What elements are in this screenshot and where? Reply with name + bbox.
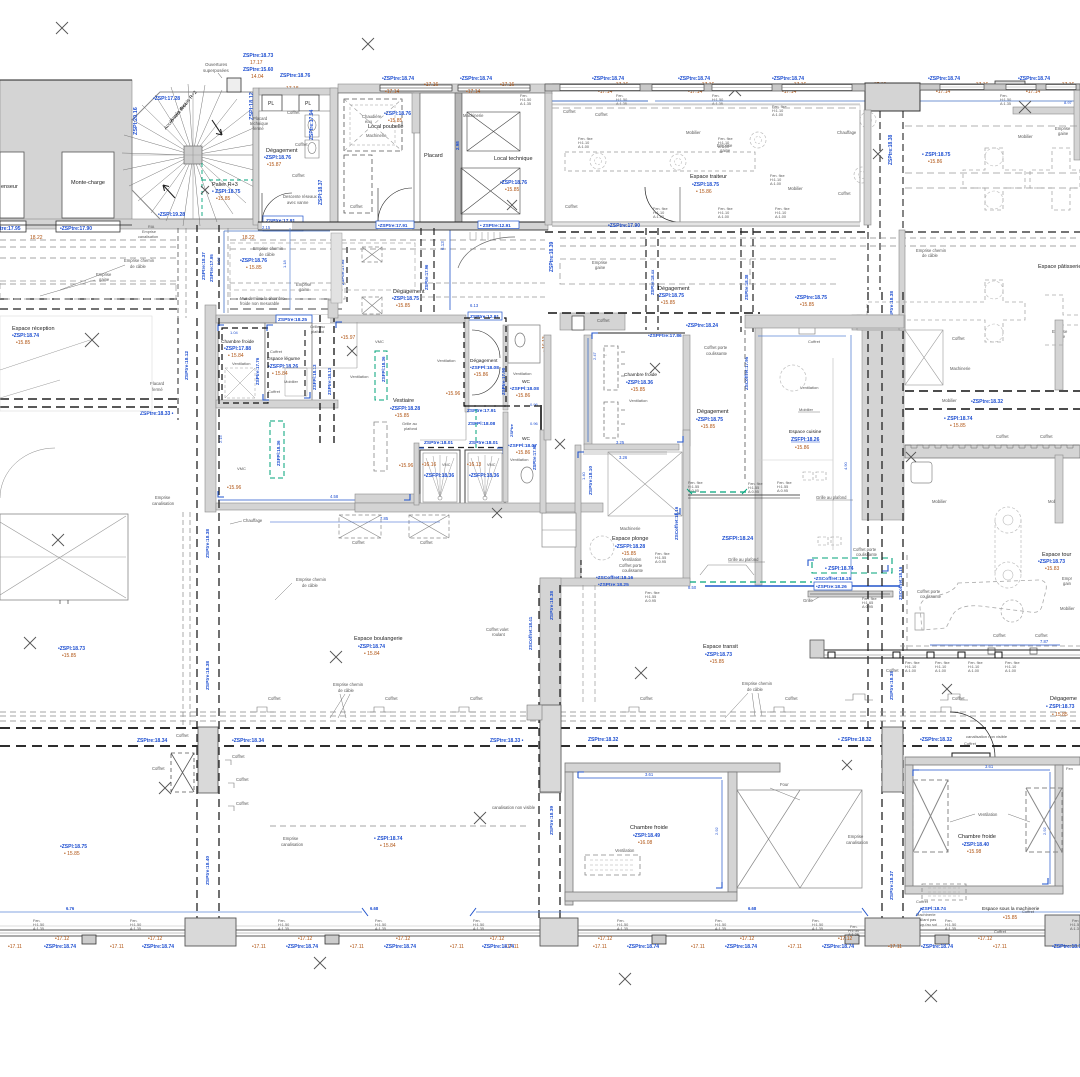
svg-text:•ZSPFtre:17.86: •ZSPFtre:17.86	[648, 333, 682, 339]
svg-text:ZSPtre:17.96: ZSPtre:17.96	[424, 264, 429, 290]
svg-text:•17.16: •17.16	[500, 82, 514, 88]
svg-text:•15.96: •15.96	[399, 463, 413, 469]
svg-text:de câble: de câble	[338, 688, 355, 693]
svg-text:Dégagement: Dégagement	[266, 148, 298, 154]
svg-text:VMC: VMC	[487, 463, 496, 467]
svg-text:ZSPtre:18.32: ZSPtre:18.32	[588, 737, 619, 743]
svg-text:Fen: Fen	[1066, 766, 1073, 771]
svg-text:Emprise: Emprise	[142, 230, 156, 234]
svg-text:A:1.00: A:1.00	[968, 669, 979, 673]
svg-text:Ventilation: Ventilation	[615, 848, 635, 853]
svg-text:4.90: 4.90	[843, 461, 848, 470]
svg-text:ZSFPl:18.08: ZSFPl:18.08	[468, 421, 496, 427]
svg-text:•15.86: •15.86	[516, 450, 530, 456]
svg-text:tre:17.95: tre:17.95	[0, 226, 21, 232]
svg-text:• ZSPl:18.74: • ZSPl:18.74	[825, 566, 854, 572]
svg-text:1.40: 1.40	[581, 471, 586, 480]
svg-text:•15.85: •15.85	[661, 300, 675, 306]
svg-text:ZSPtre:17.95: ZSPtre:17.95	[209, 254, 214, 282]
svg-text:ZSPtre:18.73: ZSPtre:18.73	[243, 53, 274, 59]
svg-text:A:1.35: A:1.35	[33, 927, 44, 931]
svg-text:Coffret: Coffret	[838, 191, 851, 196]
svg-text:•17.11: •17.11	[888, 944, 902, 950]
svg-text:• 15.84: • 15.84	[380, 843, 396, 849]
svg-text:Coffret: Coffret	[563, 109, 576, 114]
svg-text:A:0.95: A:0.95	[688, 489, 699, 493]
svg-text:•15.85: •15.85	[216, 196, 230, 202]
svg-text:ZSPtre:18.33 •: ZSPtre:18.33 •	[490, 738, 524, 744]
svg-text:Coffret: Coffret	[1035, 633, 1048, 638]
svg-text:Coffret: Coffret	[785, 696, 798, 701]
svg-text:canalisation: canalisation	[152, 501, 175, 506]
svg-text:Coffret: Coffret	[287, 110, 300, 115]
svg-text:Emprise chemin: Emprise chemin	[124, 258, 155, 263]
svg-text:• ZSPl:18.75: • ZSPl:18.75	[212, 189, 241, 195]
svg-text:Coffret: Coffret	[595, 112, 608, 117]
svg-text:canalisation non visible: canalisation non visible	[966, 734, 1008, 739]
svg-text:A:0.95: A:0.95	[777, 489, 788, 493]
svg-text:•17.11: •17.11	[110, 944, 124, 950]
svg-text:•17.11: •17.11	[450, 944, 464, 950]
svg-text:A:1.00: A:1.00	[1005, 669, 1016, 673]
svg-text:Ventilation: Ventilation	[513, 371, 531, 376]
svg-text:•15.85: •15.85	[710, 659, 724, 665]
svg-text:•ZSPtre:18.32: •ZSPtre:18.32	[971, 399, 1003, 405]
svg-text:•17.11: •17.11	[993, 944, 1007, 950]
svg-text:•ZSPtre:18.74: •ZSPtre:18.74	[822, 944, 854, 950]
svg-text:A:1.35: A:1.35	[617, 927, 628, 931]
svg-text:•ZSPtre:18.32: •ZSPtre:18.32	[920, 737, 952, 743]
svg-text:Chambre froide: Chambre froide	[624, 372, 657, 378]
svg-text:•15.85: •15.85	[1003, 915, 1017, 921]
svg-text:•ZSPl:17.28: •ZSPl:17.28	[153, 96, 180, 102]
svg-text:•ZSCoffret:18.16: •ZSCoffret:18.16	[596, 575, 633, 581]
svg-text:3.26: 3.26	[619, 455, 628, 460]
svg-text:ZSFPl:18.36: ZSFPl:18.36	[381, 356, 386, 382]
svg-text:PL: PL	[268, 101, 274, 107]
svg-text:A:1.35: A:1.35	[375, 927, 386, 931]
svg-text:fermé: fermé	[152, 387, 163, 392]
svg-text:Grille au plafond: Grille au plafond	[816, 495, 847, 500]
svg-text:• ZSPl:18.73: • ZSPl:18.73	[1046, 704, 1075, 710]
svg-text:Monte-charge: Monte-charge	[71, 180, 105, 186]
svg-text:7.85: 7.85	[380, 516, 389, 521]
svg-text:ZSPtre:18.38: ZSPtre:18.38	[205, 529, 211, 558]
svg-text:coulissante: coulissante	[706, 351, 728, 356]
svg-text:ZSPtre:18.38: ZSPtre:18.38	[549, 591, 555, 620]
svg-text:Ventilation: Ventilation	[350, 374, 368, 379]
svg-text:6.13: 6.13	[470, 303, 479, 308]
svg-text:Four: Four	[780, 782, 789, 787]
svg-text:gain: gain	[1063, 581, 1072, 586]
svg-text:Machinerie: Machinerie	[620, 526, 641, 531]
svg-text:Mobilier: Mobilier	[1060, 606, 1075, 611]
svg-text:4.58: 4.58	[330, 494, 339, 499]
svg-text:ZSPtre:17.90: ZSPtre:17.90	[501, 367, 506, 395]
svg-text:Ventilation: Ventilation	[510, 457, 528, 462]
svg-text:WC: WC	[522, 379, 531, 385]
svg-text:ZSPtre:18.38: ZSPtre:18.38	[205, 661, 211, 690]
svg-text:Coffret: Coffret	[352, 540, 365, 545]
svg-text:Coffret: Coffret	[385, 696, 398, 701]
svg-text:Coffret: Coffret	[886, 668, 899, 673]
svg-text:ZSPtre:17.96: ZSPtre:17.96	[532, 444, 537, 470]
svg-text:coulissante: coulissante	[622, 568, 644, 573]
svg-text:Emprise chemin: Emprise chemin	[253, 246, 284, 251]
svg-text:•17.11: •17.11	[350, 944, 364, 950]
svg-text:Grille: Grille	[803, 598, 813, 603]
svg-text:Ouvertures: Ouvertures	[205, 62, 228, 67]
svg-text:Descente réseaux: Descente réseaux	[283, 194, 318, 199]
svg-text:• ZSPl:18.74: • ZSPl:18.74	[374, 836, 403, 842]
svg-text:•ZSPtre:18.74: •ZSPtre:18.74	[44, 944, 76, 950]
svg-text:6.68: 6.68	[370, 906, 379, 911]
svg-text:•15.97: •15.97	[341, 335, 355, 341]
svg-text:Emprise chemin: Emprise chemin	[296, 577, 327, 582]
svg-text:Espace tour: Espace tour	[1042, 552, 1072, 558]
svg-text:enseur: enseur	[1, 184, 18, 190]
svg-text:ZSPtre:18.12: ZSPtre:18.12	[184, 351, 190, 380]
svg-text:•15.98: •15.98	[967, 849, 981, 855]
svg-text:3.92: 3.92	[216, 256, 221, 265]
svg-text:•16.16: •16.16	[422, 462, 436, 468]
svg-text:A:1.35: A:1.35	[715, 927, 726, 931]
svg-text:• 15.85: • 15.85	[64, 851, 80, 857]
svg-text:Coffret: Coffret	[268, 389, 281, 394]
svg-text:de câble: de câble	[259, 252, 276, 257]
svg-text:• ZSPl:18.75: • ZSPl:18.75	[922, 152, 951, 158]
svg-text:•ZSPl:18.75: •ZSPl:18.75	[60, 844, 87, 850]
svg-text:•17.11: •17.11	[252, 944, 266, 950]
svg-text:Coffret: Coffret	[268, 696, 281, 701]
svg-text:Mobilier: Mobilier	[799, 407, 814, 412]
svg-text:RIA: RIA	[148, 225, 155, 229]
svg-text:A:1.35: A:1.35	[473, 927, 484, 931]
svg-text:•17.12: •17.12	[598, 936, 612, 942]
svg-text:•ZSPl:18.73: •ZSPl:18.73	[58, 646, 85, 652]
svg-text:•15.85: •15.85	[396, 303, 410, 309]
svg-text:Coffret: Coffret	[295, 142, 308, 147]
svg-text:plafond: plafond	[404, 426, 417, 431]
svg-text:Emprise chemin: Emprise chemin	[333, 682, 364, 687]
svg-text:•ZSPl:18.76: •ZSPl:18.76	[240, 258, 267, 264]
svg-text:A:1.35: A:1.35	[812, 927, 823, 931]
svg-text:ZSPtre:18.40: ZSPtre:18.40	[205, 856, 211, 885]
svg-text:VMC: VMC	[442, 463, 451, 467]
svg-text:•17.12: •17.12	[490, 936, 504, 942]
svg-text:•ZSPl:18.75: •ZSPl:18.75	[692, 182, 719, 188]
svg-text:Espace pâtisserie: Espace pâtisserie	[1038, 264, 1080, 270]
svg-text:0.96: 0.96	[530, 421, 539, 426]
svg-text:Coffret: Coffret	[952, 336, 965, 341]
svg-text:Coffret: Coffret	[350, 204, 363, 209]
svg-text:Coffret: Coffret	[420, 540, 433, 545]
svg-text:coulissante: coulissante	[920, 594, 942, 599]
svg-text:3.61: 3.61	[985, 764, 994, 769]
svg-text:•ZSPtre:18.24: •ZSPtre:18.24	[686, 323, 718, 329]
svg-text:•ZSPtre:18.74: •ZSPtre:18.74	[382, 76, 414, 82]
svg-text:Dégagement: Dégagement	[697, 409, 729, 415]
svg-text:Ventilation: Ventilation	[800, 385, 818, 390]
svg-text:•ZSPl:18.74: •ZSPl:18.74	[358, 644, 385, 650]
svg-text:•ZSPl:19.28: •ZSPl:19.28	[158, 212, 185, 218]
svg-text:7.87: 7.87	[1040, 639, 1049, 644]
svg-text:•ZSPl:18.76: •ZSPl:18.76	[264, 155, 291, 161]
svg-text:A:1.00: A:1.00	[772, 113, 783, 117]
svg-text:A:1.35: A:1.35	[520, 102, 531, 106]
svg-text:A:1.35: A:1.35	[130, 927, 141, 931]
svg-text:•ZSPl:18.49: •ZSPl:18.49	[633, 833, 660, 839]
svg-text:ZSPtre:18.01: ZSPtre:18.01	[469, 440, 498, 446]
svg-text:A:1.35: A:1.35	[278, 927, 289, 931]
svg-text:•ZSFPl:18.36: •ZSFPl:18.36	[424, 473, 454, 479]
svg-text:•15.85: •15.85	[16, 340, 30, 346]
svg-text:Coffret: Coffret	[176, 733, 189, 738]
svg-text:•ZSFPl:18.08: •ZSFPl:18.08	[510, 386, 539, 392]
svg-text:Coffret: Coffret	[1022, 909, 1035, 914]
svg-text:ZSPtre:18.39: ZSPtre:18.39	[549, 806, 555, 835]
svg-text:•ZSFPl:18.08: •ZSFPl:18.08	[470, 365, 499, 371]
svg-text:Coffret: Coffret	[236, 801, 249, 806]
svg-text:ZSPtre:17.76: ZSPtre:17.76	[255, 357, 260, 385]
svg-text:Ventilation: Ventilation	[622, 557, 642, 562]
svg-text:A:0.95: A:0.95	[645, 599, 656, 603]
svg-text:•15.86: •15.86	[516, 393, 530, 399]
svg-text:de câble: de câble	[130, 264, 147, 269]
svg-text:de câble: de câble	[302, 583, 319, 588]
svg-text:Coffret porte: Coffret porte	[704, 345, 728, 350]
svg-text:•17.16: •17.16	[424, 82, 438, 88]
svg-text:•ZSCoffret:18.15: •ZSCoffret:18.15	[814, 576, 851, 582]
svg-text:6.76: 6.76	[66, 906, 75, 911]
svg-text:ZSPtre:18.34: ZSPtre:18.34	[137, 738, 168, 744]
svg-text:3.25: 3.25	[616, 440, 625, 445]
svg-text:Coffret: Coffret	[270, 349, 283, 354]
svg-text:Mobilier: Mobilier	[284, 379, 299, 384]
svg-text:ZSPtre:12.91: ZSPtre:12.91	[470, 314, 499, 320]
svg-text:•15.87: •15.87	[267, 162, 281, 168]
svg-text:•15.96: •15.96	[446, 391, 460, 397]
svg-text:Coffret: Coffret	[808, 339, 821, 344]
svg-text:Placard: Placard	[424, 153, 443, 159]
svg-text:ZSPtre:18.33 •: ZSPtre:18.33 •	[140, 411, 174, 417]
svg-text:6.13: 6.13	[440, 241, 445, 250]
svg-text:•ZSPtre:18.74: •ZSPtre:18.74	[482, 944, 514, 950]
svg-text:•15.85: •15.85	[701, 424, 715, 430]
svg-text:•ZSFPl:18.36: •ZSFPl:18.36	[469, 473, 499, 479]
svg-text:A:1.00: A:1.00	[718, 215, 729, 219]
svg-text:canalisation non visible: canalisation non visible	[492, 805, 536, 810]
svg-text:plafond: plafond	[311, 329, 324, 334]
svg-text:Mobilier: Mobilier	[942, 398, 957, 403]
svg-text:roulant: roulant	[492, 632, 506, 637]
svg-text:Coffret: Coffret	[597, 318, 610, 323]
svg-text:ZSPtre:18.xx: ZSPtre:18.xx	[650, 269, 655, 295]
svg-text:gaine: gaine	[595, 265, 606, 270]
svg-text:VMC: VMC	[237, 466, 246, 471]
svg-text:8.97: 8.97	[1064, 100, 1073, 105]
svg-text:•17.12: •17.12	[396, 936, 410, 942]
svg-text:A:0.95: A:0.95	[748, 490, 759, 494]
svg-text:•ZSPtre:18.34: •ZSPtre:18.34	[232, 738, 264, 744]
svg-text:Coffret: Coffret	[1040, 434, 1053, 439]
svg-text:•ZSPl:18.73: •ZSPl:18.73	[1038, 559, 1065, 565]
svg-text:Coffret: Coffret	[994, 929, 1007, 934]
svg-text:•ZSPtre:18.74: •ZSPtre:18.74	[627, 944, 659, 950]
svg-text:• 15.86: • 15.86	[696, 189, 712, 195]
svg-text:Emprise: Emprise	[848, 834, 864, 839]
svg-text:•17.14: •17.14	[466, 89, 480, 95]
svg-text:ZSPtre:18.37: ZSPtre:18.37	[201, 252, 206, 280]
svg-text:A:1.00: A:1.00	[718, 145, 729, 149]
svg-text:Mobilier: Mobilier	[788, 186, 803, 191]
svg-text:•15.85: •15.85	[800, 302, 814, 308]
svg-text:VMC: VMC	[375, 339, 384, 344]
svg-text:• 15.85: • 15.85	[950, 423, 966, 429]
svg-text:• ZSPl:18.74: • ZSPl:18.74	[944, 416, 973, 422]
svg-text:•ZSPtre:17.91: •ZSPtre:17.91	[378, 223, 408, 228]
svg-text:superposées: superposées	[203, 68, 230, 73]
svg-text:ZSPl:18.37: ZSPl:18.37	[318, 179, 324, 205]
svg-text:Emprise: Emprise	[283, 836, 299, 841]
svg-text:Emprise: Emprise	[155, 495, 171, 500]
svg-text:•ZSPl:18.75: •ZSPl:18.75	[392, 296, 419, 302]
svg-text:14.04: 14.04	[251, 74, 264, 80]
svg-text:canalisation: canalisation	[138, 235, 158, 239]
svg-text:1.18: 1.18	[282, 259, 287, 268]
svg-text:Coffret: Coffret	[565, 204, 578, 209]
svg-text:A:1.35: A:1.35	[945, 927, 956, 931]
svg-text:ZSPtre:18.76: ZSPtre:18.76	[280, 73, 311, 79]
svg-text:Dégagement: Dégagement	[470, 358, 498, 364]
svg-text:•ZSFPl:18.28: •ZSFPl:18.28	[615, 544, 645, 550]
svg-text:ZSPtre:18.10: ZSPtre:18.10	[588, 466, 594, 495]
svg-text:•16.13: •16.13	[467, 462, 481, 468]
svg-text:Coffret: Coffret	[993, 633, 1006, 638]
svg-text:ZSPtre:17.91: ZSPtre:17.91	[467, 408, 496, 414]
svg-text:•ZSPl:17.88: •ZSPl:17.88	[224, 346, 251, 352]
svg-text:Chambre froide: Chambre froide	[958, 834, 996, 840]
svg-text:•ZSPtre:18.74: •ZSPtre:18.74	[1052, 944, 1080, 950]
svg-text:Ventilation: Ventilation	[978, 812, 998, 817]
svg-text:Coffret: Coffret	[470, 696, 483, 701]
svg-text:•17.11: •17.11	[788, 944, 802, 950]
svg-text:•15.85: •15.85	[505, 187, 519, 193]
svg-text:•15.86: •15.86	[795, 445, 809, 451]
svg-text:Local technique: Local technique	[494, 156, 533, 162]
svg-text:•ZSPtre:18.74: •ZSPtre:18.74	[928, 76, 960, 82]
svg-text:• 15.84: • 15.84	[228, 353, 244, 359]
svg-text:de câble: de câble	[747, 687, 764, 692]
svg-text:2.92: 2.92	[1042, 826, 1047, 835]
svg-text:A:1.00: A:1.00	[935, 669, 946, 673]
svg-text:Machinerie: Machinerie	[366, 133, 387, 138]
svg-text:1.04: 1.04	[230, 330, 239, 335]
svg-text:Coffret: Coffret	[640, 696, 653, 701]
svg-text:Espace réception: Espace réception	[12, 326, 55, 332]
svg-text:Espace boulangerie: Espace boulangerie	[354, 636, 403, 642]
svg-text:2.92: 2.92	[714, 826, 719, 835]
svg-text:6.68: 6.68	[748, 906, 757, 911]
svg-text:Espace transit: Espace transit	[703, 644, 738, 650]
svg-text:fermé: fermé	[253, 126, 264, 131]
svg-text:•ZSPtre:18.74: •ZSPtre:18.74	[142, 944, 174, 950]
svg-text:•ZSPtre:18.75: •ZSPtre:18.75	[795, 295, 827, 301]
svg-text:A:1.35: A:1.35	[848, 933, 859, 937]
svg-text:•ZSPl:18.76: •ZSPl:18.76	[384, 111, 411, 117]
svg-text:Chauffage: Chauffage	[837, 130, 857, 135]
svg-text:3.61: 3.61	[645, 772, 654, 777]
svg-text:A:1.00: A:1.00	[775, 215, 786, 219]
svg-text:Espace cuisine: Espace cuisine	[789, 429, 822, 435]
svg-text:Chambre froide: Chambre froide	[221, 339, 254, 345]
svg-text:froide non mesurable: froide non mesurable	[240, 301, 280, 306]
svg-text:Dégageme: Dégageme	[1050, 696, 1077, 702]
svg-text:ZSPtre:18.13: ZSPtre:18.13	[327, 367, 332, 395]
svg-text:•17.11: •17.11	[8, 944, 22, 950]
svg-text:•ZSPl:18.74: •ZSPl:18.74	[12, 333, 39, 339]
svg-text:ZSPtre:18.38: ZSPtre:18.38	[888, 134, 894, 165]
svg-text:WC: WC	[522, 436, 531, 442]
svg-text:• ZSPtre:18.32: • ZSPtre:18.32	[838, 737, 872, 743]
svg-text:• 15.85: • 15.85	[1052, 712, 1068, 718]
svg-text:•ZSPl:18.75: •ZSPl:18.75	[657, 293, 684, 299]
svg-text:Vestiaire: Vestiaire	[393, 398, 414, 404]
svg-text:•17.14: •17.14	[385, 89, 399, 95]
svg-text:•ZSPl:18.76: •ZSPl:18.76	[500, 180, 527, 186]
svg-text:• ZSPtre:12.91: • ZSPtre:12.91	[480, 223, 511, 228]
svg-text:Coffret: Coffret	[996, 434, 1009, 439]
svg-text:2.15: 2.15	[262, 225, 271, 230]
svg-text:Coffret: Coffret	[232, 754, 245, 759]
svg-text:ZSPtre: ZSPtre	[509, 423, 514, 437]
svg-text:•ZSPtre:17.90: •ZSPtre:17.90	[60, 226, 92, 232]
svg-text:canalisation: canalisation	[281, 842, 304, 847]
svg-text:ZSPtre:18.25: ZSPtre:18.25	[278, 317, 307, 323]
svg-text:A:1.35: A:1.35	[1000, 102, 1011, 106]
svg-text:•ZSPl:18.36: •ZSPl:18.36	[626, 380, 653, 386]
svg-text:Mobilier: Mobilier	[932, 499, 947, 504]
svg-text:• 15.85: • 15.85	[246, 265, 262, 271]
svg-text:•15.85: •15.85	[395, 413, 409, 419]
svg-text:•16.08: •16.08	[638, 840, 652, 846]
svg-text:•ZSFPl:18.28: •ZSFPl:18.28	[390, 406, 420, 412]
svg-text:•17.12: •17.12	[55, 936, 69, 942]
svg-text:17.17: 17.17	[250, 60, 263, 66]
svg-text:ZSFPl:18.36: ZSFPl:18.36	[276, 440, 281, 466]
svg-text:canalisation: canalisation	[846, 840, 869, 845]
svg-text:Ventilation: Ventilation	[629, 398, 647, 403]
svg-text:•ZSPtre:18.74: •ZSPtre:18.74	[460, 76, 492, 82]
svg-text:A:1.00: A:1.00	[905, 669, 916, 673]
svg-text:ZSCoffret:18.16: ZSCoffret:18.16	[674, 506, 679, 540]
svg-text:•15.83: •15.83	[1045, 566, 1059, 572]
svg-text:• 15.84: • 15.84	[364, 651, 380, 657]
svg-text:8.50: 8.50	[688, 585, 697, 590]
svg-text:•15.85: •15.85	[62, 653, 76, 659]
svg-text:•15.86: •15.86	[474, 372, 488, 378]
svg-text:•ZSPl:18.40: •ZSPl:18.40	[962, 842, 989, 848]
svg-text:de câble: de câble	[922, 253, 939, 258]
svg-text:Machinerie: Machinerie	[950, 366, 971, 371]
svg-text:Espace traiteur: Espace traiteur	[690, 174, 727, 180]
svg-text:A:1.3: A:1.3	[1070, 927, 1079, 931]
svg-text:•17.12: •17.12	[298, 936, 312, 942]
svg-text:ZSCoffret:18.16: ZSCoffret:18.16	[898, 566, 903, 600]
svg-text:ZSPl:20.16: ZSPl:20.16	[133, 107, 139, 135]
svg-text:•17.11: •17.11	[691, 944, 705, 950]
svg-text:Chambre froide: Chambre froide	[630, 825, 668, 831]
